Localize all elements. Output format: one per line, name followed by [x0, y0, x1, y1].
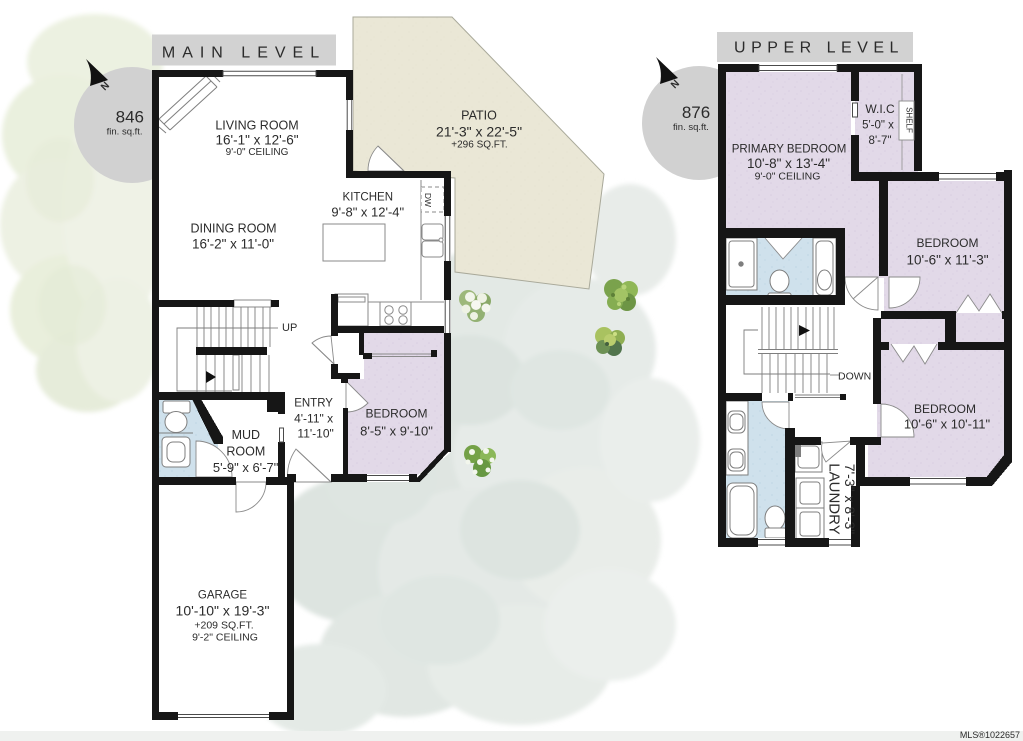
svg-text:W.I.C: W.I.C — [865, 102, 895, 116]
svg-text:BEDROOM: BEDROOM — [916, 236, 978, 250]
svg-text:PRIMARY BEDROOM: PRIMARY BEDROOM — [732, 144, 847, 156]
svg-text:+296 SQ.FT.: +296 SQ.FT. — [451, 140, 507, 151]
svg-text:UPPER LEVEL: UPPER LEVEL — [734, 40, 904, 57]
svg-text:LIVING ROOM: LIVING ROOM — [215, 119, 298, 133]
svg-text:10'-6" x 11'-3": 10'-6" x 11'-3" — [906, 253, 988, 268]
svg-text:876: 876 — [682, 103, 710, 122]
svg-text:8'-7": 8'-7" — [869, 135, 892, 147]
svg-text:16'-2" x 11'-0": 16'-2" x 11'-0" — [192, 237, 274, 252]
svg-text:+209 SQ.FT.: +209 SQ.FT. — [194, 620, 253, 632]
svg-text:PATIO: PATIO — [461, 109, 497, 123]
svg-text:9'-8" x 12'-4": 9'-8" x 12'-4" — [331, 205, 404, 220]
svg-text:10'-8" x 13'-4": 10'-8" x 13'-4" — [747, 156, 830, 171]
svg-text:LAUNDRY: LAUNDRY — [826, 463, 843, 534]
svg-text:ENTRY: ENTRY — [294, 398, 333, 410]
svg-text:DINING ROOM: DINING ROOM — [190, 222, 276, 236]
svg-text:10'-6" x 10'-11": 10'-6" x 10'-11" — [904, 417, 991, 432]
svg-text:KITCHEN: KITCHEN — [343, 192, 393, 204]
svg-text:GARAGE: GARAGE — [198, 590, 248, 602]
svg-text:MLS®1022657: MLS®1022657 — [960, 730, 1020, 740]
svg-text:16'-1" x 12'-6": 16'-1" x 12'-6" — [215, 133, 298, 148]
svg-text:DW: DW — [423, 193, 433, 207]
svg-text:21'-3" x 22'-5": 21'-3" x 22'-5" — [436, 124, 522, 140]
svg-text:5'-0" x: 5'-0" x — [862, 120, 894, 132]
svg-text:9'-0" CEILING: 9'-0" CEILING — [226, 147, 289, 158]
svg-text:fin. sq.ft.: fin. sq.ft. — [673, 122, 709, 133]
svg-text:MAIN LEVEL: MAIN LEVEL — [162, 45, 326, 62]
svg-text:UP: UP — [282, 322, 297, 334]
svg-text:11'-10": 11'-10" — [297, 427, 333, 441]
svg-text:8'-5" x 9'-10": 8'-5" x 9'-10" — [360, 424, 433, 439]
svg-text:846: 846 — [116, 108, 144, 127]
svg-text:fin. sq.ft.: fin. sq.ft. — [107, 127, 143, 138]
svg-text:9'-2" CEILING: 9'-2" CEILING — [192, 632, 258, 644]
svg-text:4'-11" x: 4'-11" x — [294, 412, 333, 426]
svg-text:BEDROOM: BEDROOM — [365, 407, 427, 421]
svg-text:5'-9" x 6'-7": 5'-9" x 6'-7" — [213, 460, 279, 475]
svg-text:ROOM: ROOM — [226, 445, 265, 459]
svg-text:DOWN: DOWN — [838, 371, 871, 383]
svg-text:BEDROOM: BEDROOM — [914, 402, 976, 416]
svg-text:SHELF: SHELF — [905, 107, 914, 133]
svg-text:10'-10" x 19'-3": 10'-10" x 19'-3" — [176, 603, 270, 619]
svg-text:7'-3" x 8'-3": 7'-3" x 8'-3" — [842, 464, 858, 535]
svg-text:MUD: MUD — [232, 428, 260, 442]
svg-text:9'-0" CEILING: 9'-0" CEILING — [755, 171, 821, 183]
